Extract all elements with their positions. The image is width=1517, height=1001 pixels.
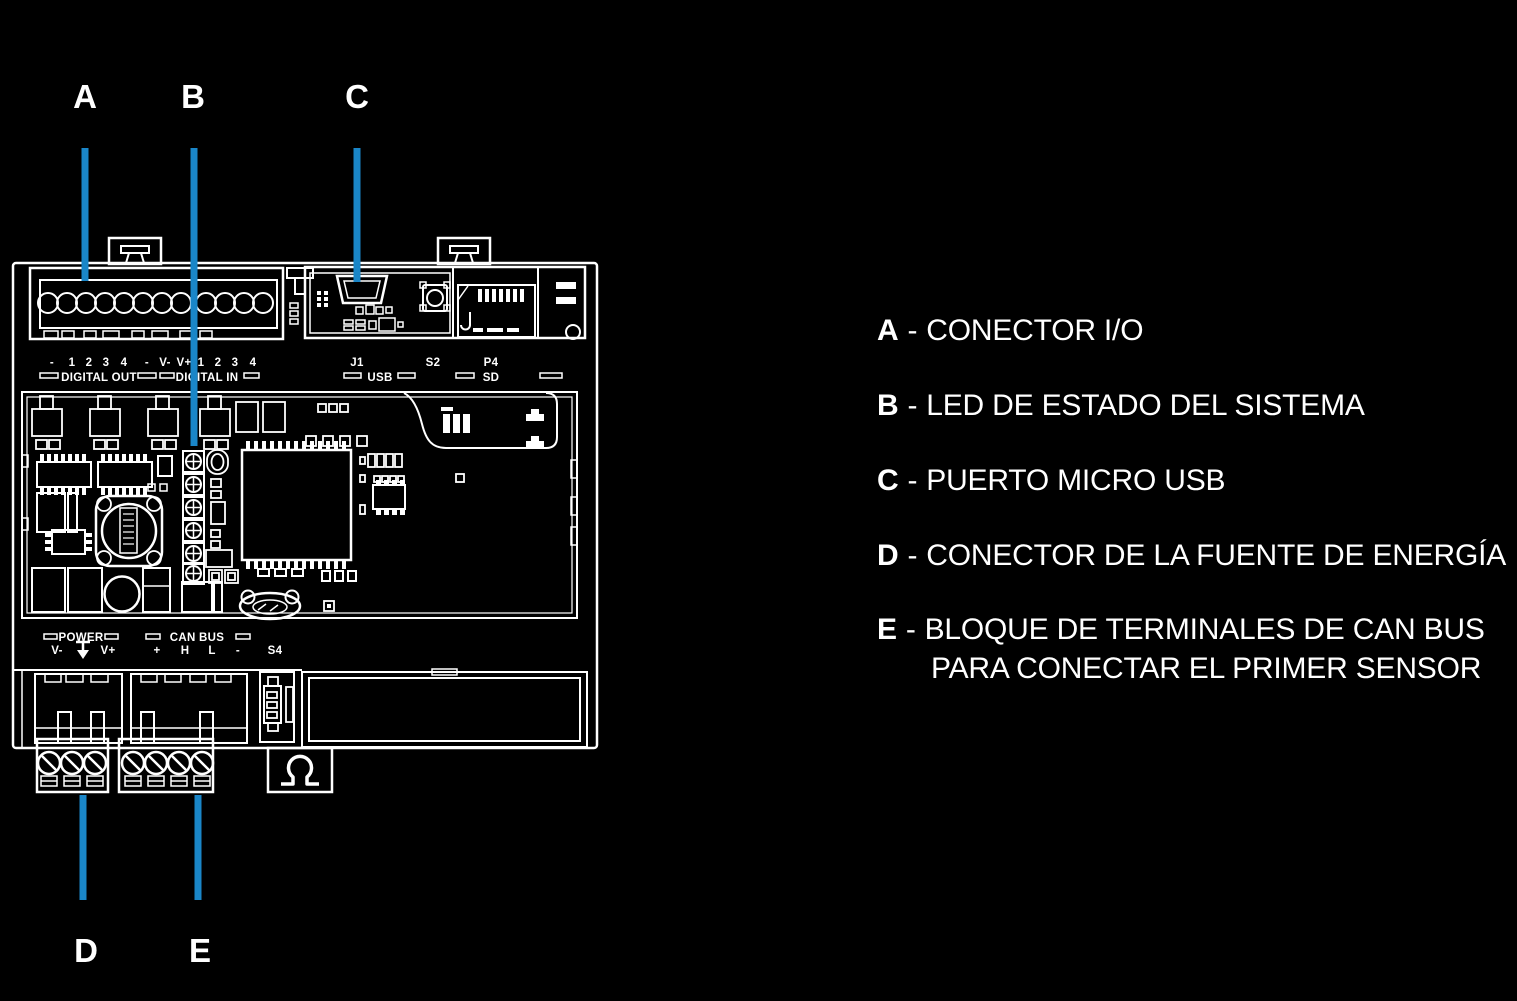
legend-letter: E [877, 613, 897, 647]
legend-text: LED DE ESTADO DEL SISTEMA [926, 389, 1364, 422]
io-pin-label: 1 [69, 357, 76, 369]
s2-label: S2 [426, 357, 441, 369]
callout-letter-a: A [73, 78, 97, 116]
fuse [260, 672, 294, 742]
omega-icon [281, 756, 319, 784]
legend-text: PARA CONECTAR EL PRIMER SENSOR [931, 652, 1481, 685]
legend-item-b: B-LED DE ESTADO DEL SISTEMA [877, 389, 1365, 423]
legend-separator: - [907, 389, 917, 423]
legend-text: PUERTO MICRO USB [926, 464, 1225, 497]
power-pin-label: V- [51, 645, 62, 657]
io-pin-label: 4 [250, 357, 257, 369]
callout-letter-b: B [181, 78, 205, 116]
expansion-compartment [302, 669, 587, 747]
usb-label: USB [367, 372, 392, 384]
legend-letter: C [877, 464, 898, 498]
crystal-oscillator [240, 591, 334, 620]
can-pin-label: L [208, 645, 215, 657]
legend-separator: - [907, 539, 917, 573]
ic-chips [37, 454, 172, 495]
case-divider [283, 268, 313, 339]
legend-letter: A [877, 314, 898, 348]
s4-label: S4 [268, 645, 283, 657]
legend-separator: - [907, 314, 917, 348]
legend-separator: - [907, 464, 917, 498]
io-pin-label: 1 [198, 357, 205, 369]
diagram-canvas: - 1 2 3 4 - V- V+ 1 2 3 4 DIGITAL OUT DI… [0, 0, 1517, 1001]
usb-support-components [344, 305, 403, 331]
sd-micro-text [473, 328, 519, 332]
vent-box [556, 282, 580, 339]
sd-label: SD [483, 372, 500, 384]
power-cavity [35, 674, 122, 743]
can-pin-label: H [181, 645, 190, 657]
legend-item-e-line2: PARA CONECTAR EL PRIMER SENSOR [931, 652, 1481, 686]
can-pin-label: + [153, 645, 160, 657]
din-rail-clips [109, 238, 490, 264]
io-pin-label: - [145, 357, 149, 369]
reset-button [420, 282, 450, 311]
legend-item-e: E-BLOQUE DE TERMINALES DE CAN BUS [877, 613, 1485, 647]
device-line-drawing: - 1 2 3 4 - V- V+ 1 2 3 4 DIGITAL OUT DI… [0, 0, 1517, 1001]
bottom-label-band: POWER CAN BUS V- V+ + H L - S4 [44, 632, 283, 659]
io-pin-label: - [50, 357, 54, 369]
digital-in-label: DIGITAL IN [176, 372, 239, 384]
io-pin-label: 3 [103, 357, 110, 369]
j1-label: J1 [350, 357, 364, 369]
top-label-band: - 1 2 3 4 - V- V+ 1 2 3 4 DIGITAL OUT DI… [40, 357, 562, 384]
p4-label: P4 [484, 357, 499, 369]
legend-text: CONECTOR I/O [926, 314, 1143, 347]
ground-symbol-icon [76, 642, 90, 659]
micro-usb-connector [337, 276, 387, 303]
system-status-leds [183, 451, 204, 584]
can-pin-label: - [236, 645, 240, 657]
io-pin-label: 2 [86, 357, 93, 369]
digital-out-label: DIGITAL OUT [61, 372, 137, 384]
legend-letter: B [877, 389, 898, 423]
legend-separator: - [906, 613, 916, 647]
transistor-array [32, 396, 367, 449]
io-pin-label: 3 [232, 357, 239, 369]
left-mid-components [37, 493, 92, 554]
lower-housing [22, 669, 587, 747]
legend-item-d: D-CONECTOR DE LA FUENTE DE ENERGÍA [877, 539, 1506, 573]
sd-card-slot [458, 285, 535, 337]
main-processor-chip [242, 441, 351, 569]
canbus-cavity [131, 674, 247, 743]
callout-letter-d: D [74, 932, 98, 970]
legend-letter: D [877, 539, 898, 573]
termination-resistor-box [268, 748, 332, 792]
legend-text: BLOQUE DE TERMINALES DE CAN BUS [925, 613, 1485, 646]
legend-text: CONECTOR DE LA FUENTE DE ENERGÍA [926, 539, 1506, 572]
terminal-block-feet [44, 331, 212, 338]
eeprom-area [360, 454, 464, 515]
notch-components [441, 407, 544, 448]
usb-pcb-dots [317, 291, 328, 307]
power-pin-label: V+ [101, 645, 116, 657]
io-pin-label: V+ [177, 357, 192, 369]
callout-letter-c: C [345, 78, 369, 116]
top-right-module [305, 267, 585, 339]
legend-item-a: A-CONECTOR I/O [877, 314, 1143, 348]
io-pin-label: 4 [121, 357, 128, 369]
callout-letter-e: E [189, 932, 211, 970]
can-bus-label: CAN BUS [170, 632, 225, 644]
io-pin-label: V- [159, 357, 170, 369]
legend-item-c: C-PUERTO MICRO USB [877, 464, 1225, 498]
io-terminal-block [30, 268, 283, 339]
screw-terminals-top [38, 293, 273, 313]
pcb-window [22, 392, 577, 618]
io-pin-label: 2 [215, 357, 222, 369]
transformer [96, 496, 162, 566]
mid-small-components [206, 450, 238, 583]
